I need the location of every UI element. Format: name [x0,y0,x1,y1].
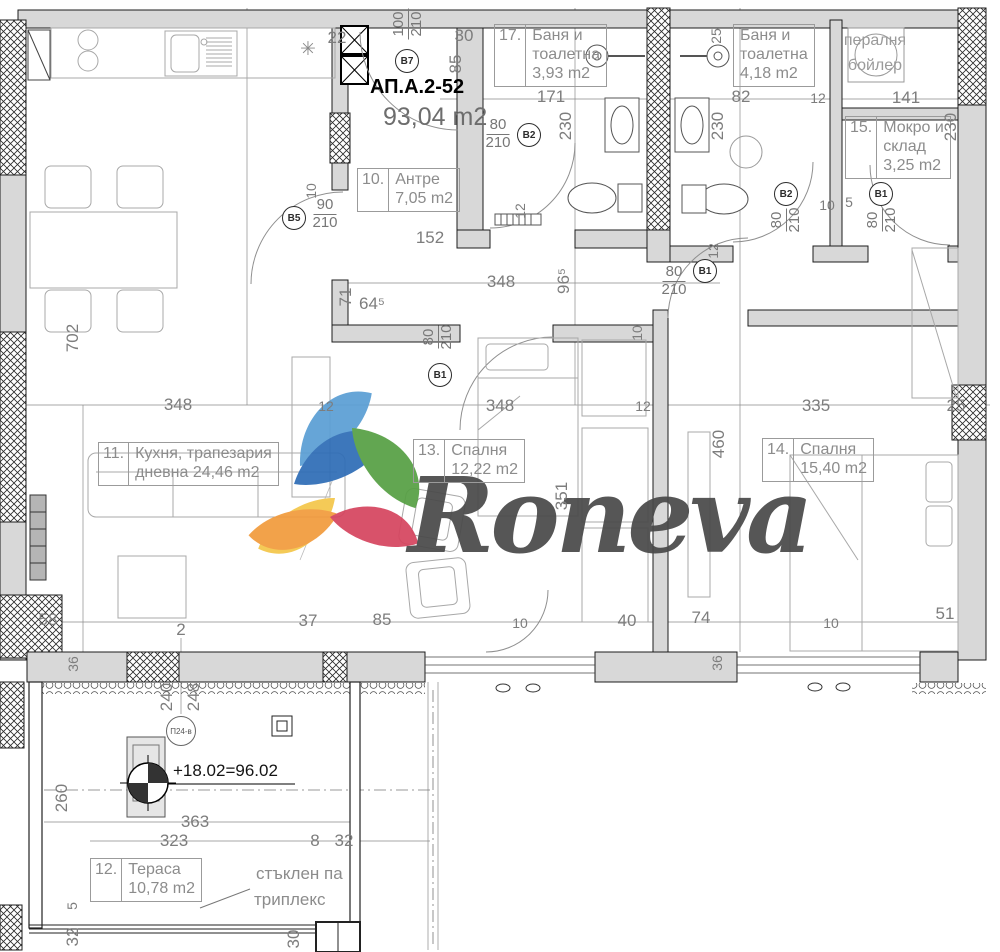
dim-label: 32 [63,928,83,947]
dim-label: 5 [845,194,853,210]
living-furniture [88,357,345,618]
room-label-bath17: 17. Баня итоалетна3,93 m2 [494,24,607,87]
room-area: дневна 24,46 m2 [135,464,272,483]
dim-label: 260 [52,784,72,812]
kitchen-furniture [28,28,335,80]
room-name: тоалетна [740,46,808,65]
dim-label: 171 [537,87,565,107]
dim-label: 12 [318,398,334,414]
dim-label: 12 [705,243,721,259]
apartment-id: АП.А.2-52 [370,76,464,99]
room-name: Спалня [800,441,867,460]
door-size-label: 80210 [661,264,686,298]
dim-label: 460 [709,430,729,458]
door-mark: В5 [282,206,306,230]
dim-label: 230 [708,112,728,140]
dim-label: 230 [941,113,961,141]
laundry-note: пералня [840,32,910,50]
door-mark: В2 [517,123,541,147]
dim-label: 702 [63,324,83,352]
room-name: Мокро и [883,119,944,138]
room-label-storage: 15. Мокро исклад3,25 m2 [845,116,951,179]
total-area: 93,04 m2 [383,103,487,132]
room-label-bath2: Баня итоалетна4,18 m2 [733,24,815,87]
dim-label: 240 [157,683,177,711]
dim-label: 25 [708,28,724,44]
room-label-bedroom13: 13. Спалня12,22 m2 [413,439,525,483]
door-size-label: 80210 [769,207,803,232]
dim-label: 230 [556,112,576,140]
room-area: 12,22 m2 [451,461,518,480]
room-number: 14. [763,439,794,481]
dim-label: 10 [629,325,645,341]
dim-label: 12 [810,90,826,106]
dim-label: 37 [299,611,318,631]
dim-label: 348 [164,395,192,415]
door-size-label: 80210 [485,117,510,151]
dim-label: 74 [692,608,711,628]
elevation-value: +18.02=96.02 [173,761,278,781]
dim-label: 32 [335,831,354,851]
dim-label: 152 [416,228,444,248]
dim-label: 348 [486,396,514,416]
dim-label: 323 [160,831,188,851]
room-area: 7,05 m2 [395,190,453,209]
dim-label: 5 [64,902,80,910]
door-mark: В1 [693,259,717,283]
dim-label: 2 [176,620,185,640]
room-area: 10,78 m2 [128,880,195,899]
room-label-terrace: 12. Тераса10,78 m2 [90,858,202,902]
room-name: Баня и [740,27,808,46]
dim-label: 36 [709,655,725,671]
dim-label: 85 [373,610,392,630]
dim-label: 71 [336,288,356,307]
room-name: Тераса [128,861,195,880]
asterisk-icon: ✳ [300,38,316,61]
threshold-marks [496,683,850,692]
dim-label: 335 [802,396,830,416]
dim-label: 10 [823,615,839,631]
room-number: 17. [495,25,526,86]
room-number: 15. [846,117,877,178]
dim-label: 82 [732,87,751,107]
dim-label: 30 [455,26,474,46]
room-label-antre: 10. Антре7,05 m2 [357,168,460,212]
dim-label: 248 [184,683,204,711]
room-name: тоалетна [532,46,600,65]
dim-label: 12 [635,398,651,414]
dim-label: 25 [947,396,966,416]
room-number: 13. [414,440,445,482]
boiler-note: бойлер [840,57,910,75]
dim-label: 85 [446,55,466,74]
door-mark: В1 [869,182,893,206]
dim-label: 363 [181,812,209,832]
door-mark: В2 [774,182,798,206]
door-mark: В1 [428,363,452,387]
door-size-label: 80210 [865,207,899,232]
radiator [30,495,46,580]
room-name: Кухня, трапезария [135,445,272,464]
dim-label: 30 [284,930,304,949]
dim-label: 36 [65,656,81,672]
room-number: 11. [99,443,129,485]
dim-label: 64⁵ [359,294,385,314]
room-name: Баня и [532,27,600,46]
room-area: 3,25 m2 [883,157,944,176]
dim-label: 58 [39,610,58,630]
dim-label: 141 [892,88,920,108]
room-area: 4,18 m2 [740,65,808,84]
dim-label: 348 [487,272,515,292]
dim-label: 40 [618,611,637,631]
glass-parapet-note: стъклен па [256,864,343,884]
door-size-label: 100210 [391,8,425,39]
room-number: 12. [91,859,122,901]
room-area: 15,40 m2 [800,460,867,479]
door-mark: В7 [395,49,419,73]
dim-label: 12 [512,203,528,219]
dim-label: 22 [328,28,347,48]
room-name: Антре [395,171,453,190]
room-number: 10. [358,169,389,211]
room-name: склад [883,138,944,157]
room-area: 3,93 m2 [532,65,600,84]
window-mark: П24-в [166,716,196,746]
room-name: Спалня [451,442,518,461]
dim-label: 351 [552,482,572,510]
glass-parapet-note: триплекс [254,890,325,910]
room-label-bedroom14: 14. Спалня15,40 m2 [762,438,874,482]
door-size-label: 90210 [312,197,337,231]
floorplan-page: Roneva АП.А.2-52 93,04 m2 10. Антре7,05 … [0,0,1000,952]
glass-leader [200,889,250,908]
dim-label: 10 [303,183,319,199]
dim-label: 10 [819,197,835,213]
door-size-label: 80210 [421,324,455,349]
room-label-kitchen: 11. Кухня, трапезариядневна 24,46 m2 [98,442,279,486]
dim-label: 51 [936,604,955,624]
dining-set [30,166,177,332]
dim-label: 96⁵ [554,268,574,294]
dim-label: 8 [310,831,319,851]
dim-label: 10 [512,615,528,631]
